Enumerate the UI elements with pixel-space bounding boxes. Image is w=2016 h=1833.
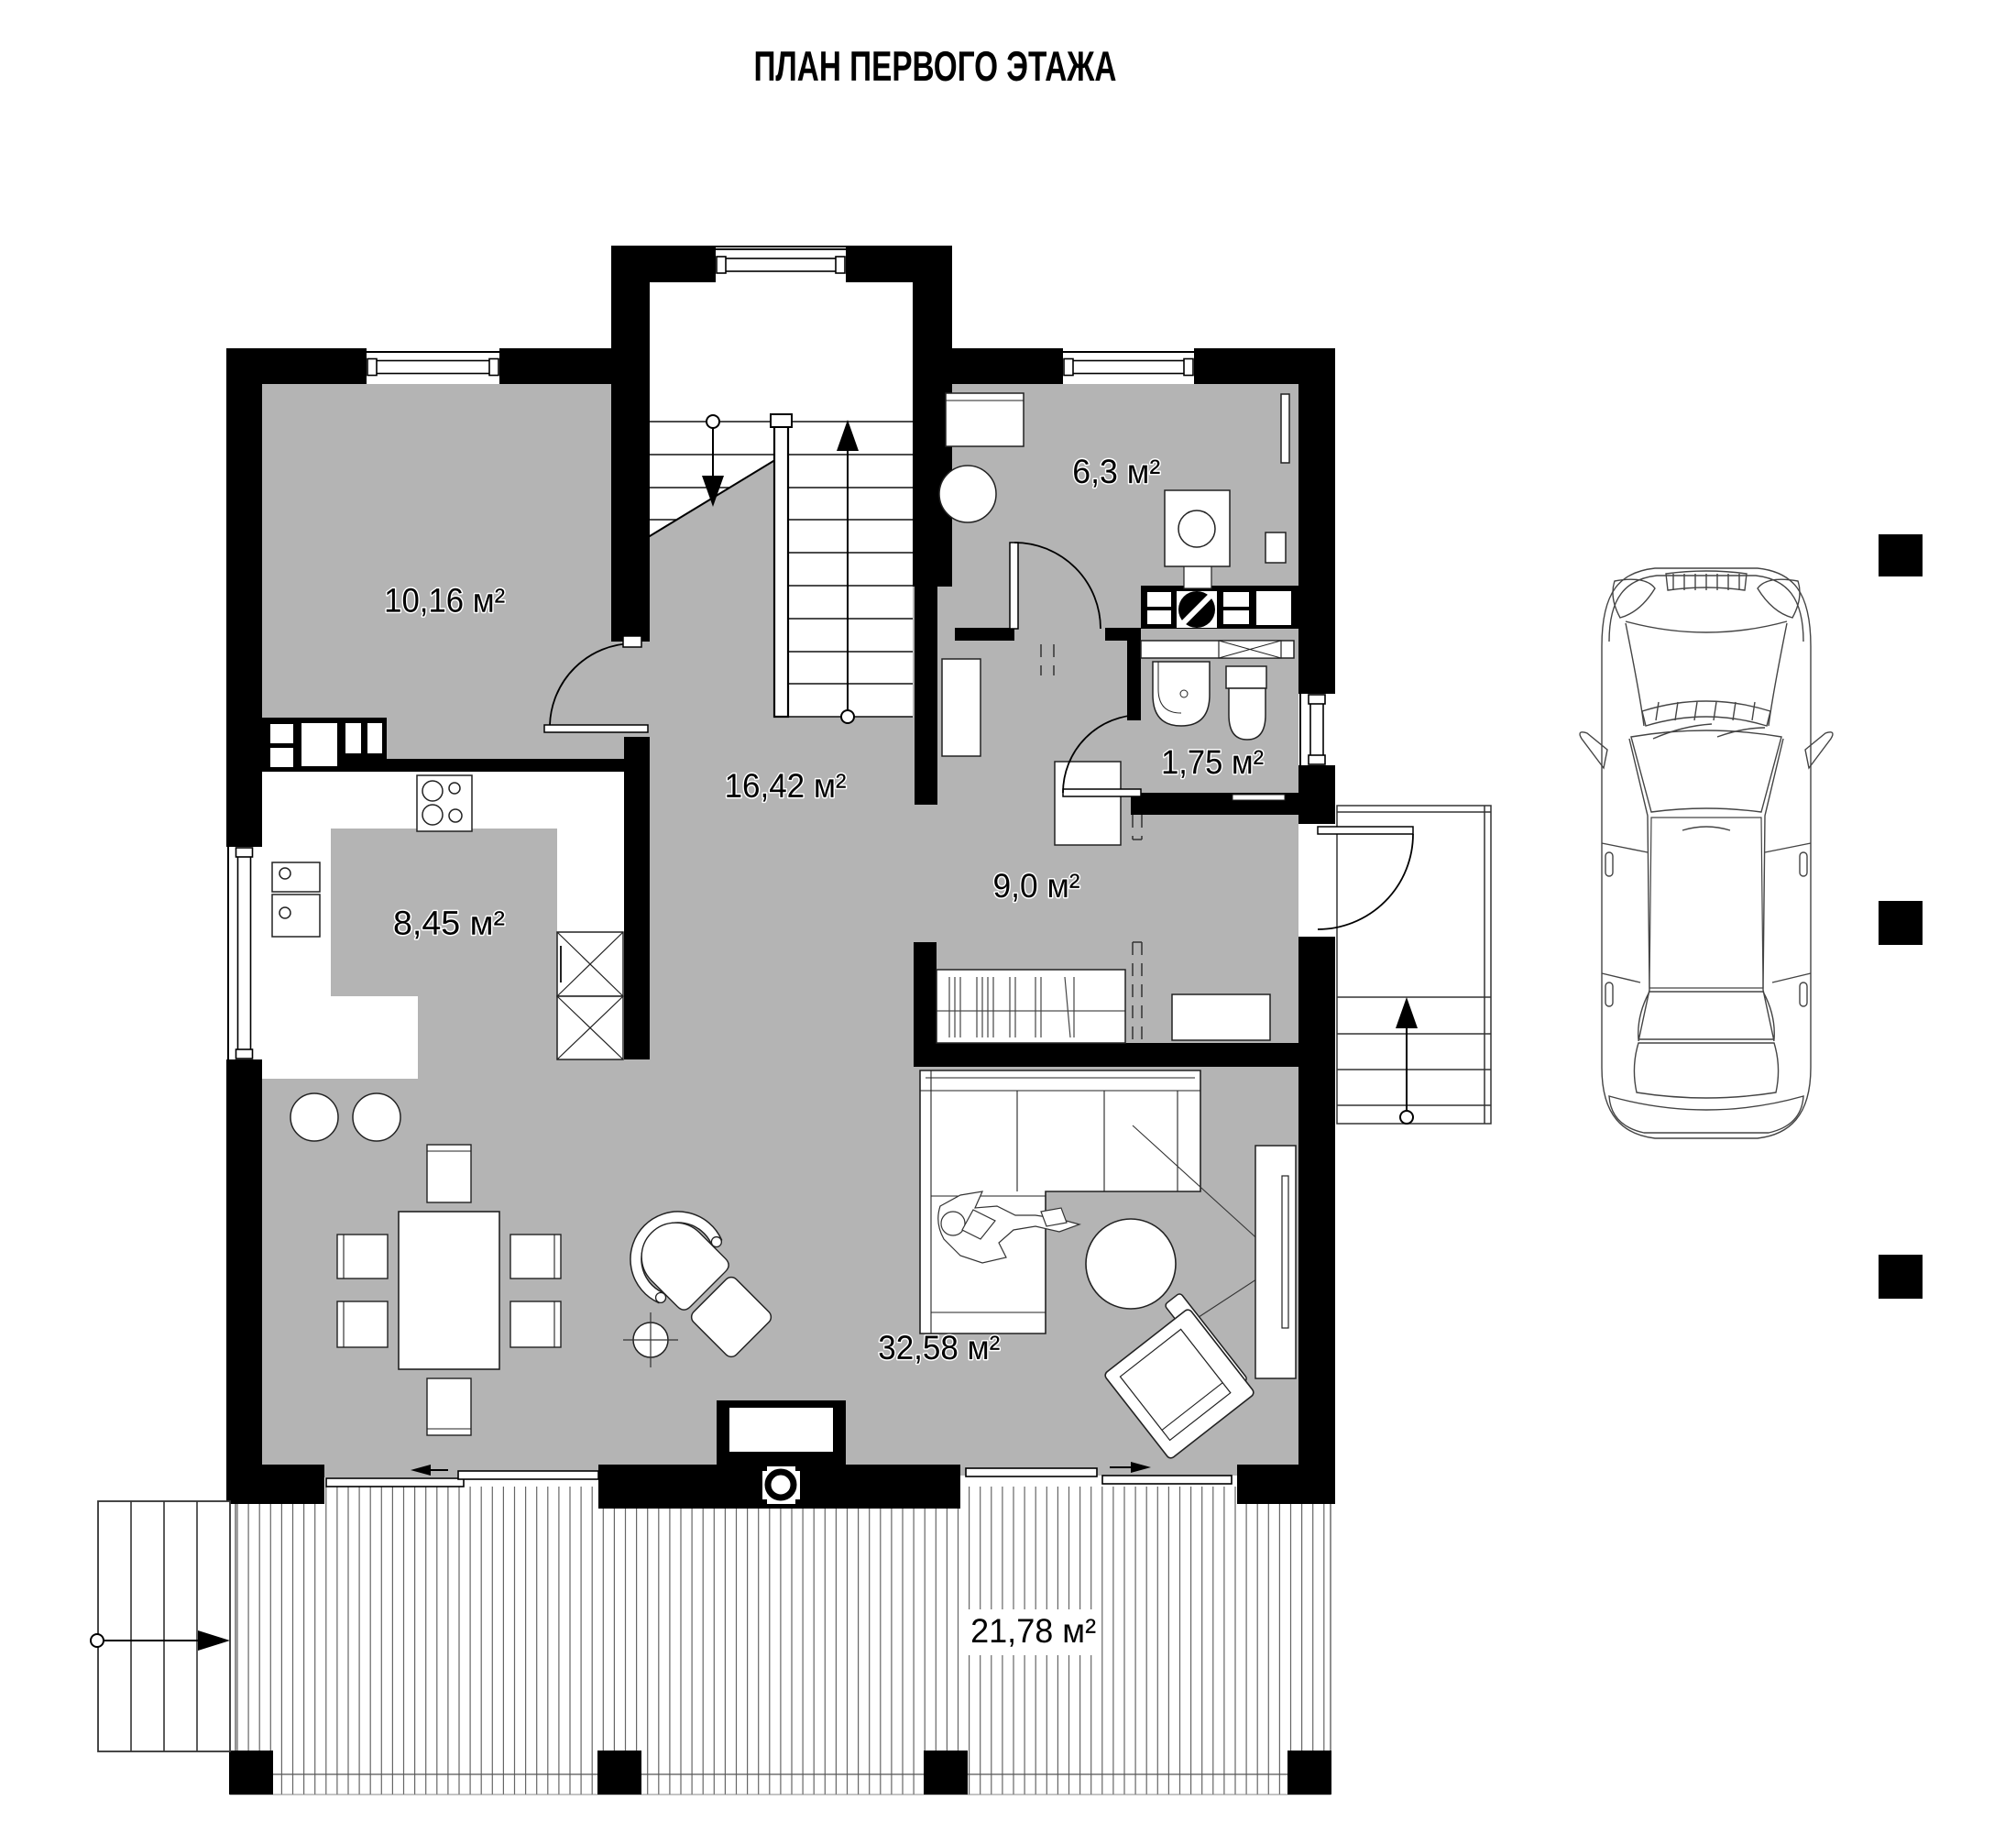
- svg-text:16,42 м²: 16,42 м²: [725, 767, 847, 805]
- svg-text:1,75 м²: 1,75 м²: [1161, 743, 1264, 781]
- svg-text:6,3 м²: 6,3 м²: [1072, 453, 1160, 490]
- svg-text:21,78 м²: 21,78 м²: [970, 1612, 1096, 1650]
- svg-text:ПЛАН ПЕРВОГО ЭТАЖА: ПЛАН ПЕРВОГО ЭТАЖА: [753, 42, 1116, 90]
- svg-text:32,58 м²: 32,58 м²: [878, 1329, 1000, 1367]
- svg-text:9,0 м²: 9,0 м²: [993, 867, 1080, 905]
- svg-text:10,16 м²: 10,16 м²: [384, 582, 505, 620]
- svg-text:8,45 м²: 8,45 м²: [393, 905, 505, 942]
